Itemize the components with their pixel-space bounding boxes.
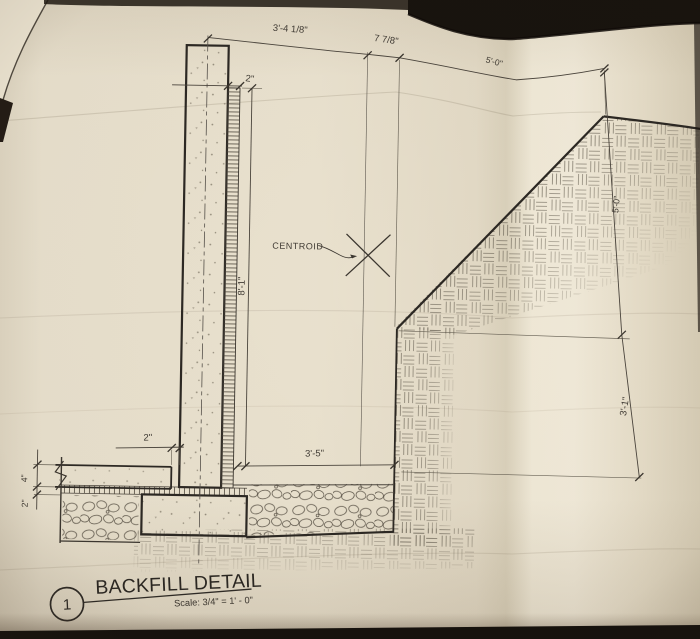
backfill-detail-sheet: 3'-4 1/8" 7 7/8" 5'-0" 2" 8'-1" 3'-5" 5'…: [0, 0, 700, 639]
photo-of-paper-drawing: 3'-4 1/8" 7 7/8" 5'-0" 2" 8'-1" 3'-5" 5'…: [0, 0, 700, 639]
photo-vignette: [0, 0, 700, 639]
